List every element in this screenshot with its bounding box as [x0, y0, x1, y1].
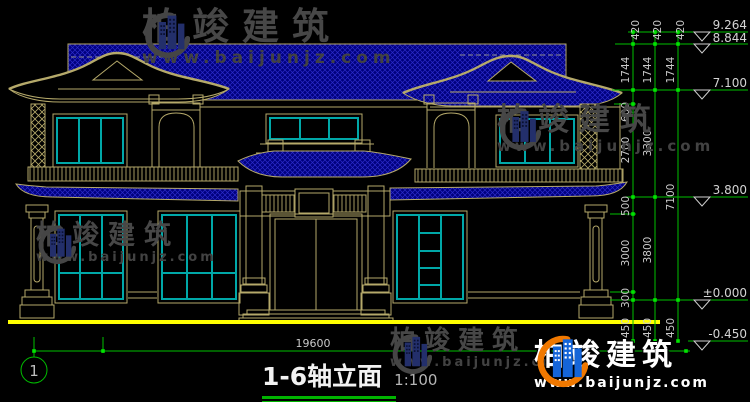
- entrance-door: [270, 214, 362, 310]
- entrance-porch: [239, 186, 393, 322]
- second-floor-left-wing: [31, 104, 127, 168]
- elevation-symbols: [694, 32, 710, 350]
- elevation-label: 7.100: [713, 76, 747, 90]
- dim-label: 420: [630, 20, 642, 40]
- dim-label: 2700: [620, 137, 632, 164]
- dim-label: 7100: [665, 184, 677, 211]
- dim-label: 500: [620, 196, 632, 216]
- elevation-label: 8.844: [713, 31, 747, 45]
- drawing-scale: 1:100: [394, 371, 437, 389]
- dim-label: 450: [665, 318, 677, 338]
- drawing-title: 1-6轴立面: [262, 357, 382, 393]
- cad-drawing-viewport: 420 1744 600 2700 500 3000 300 450 420 1…: [0, 0, 750, 402]
- elevation-label: ±0.000: [703, 286, 747, 300]
- dim-label: 3000: [620, 240, 632, 267]
- first-floor-window-1: [55, 211, 127, 303]
- axis-bubble-label: 1: [29, 362, 39, 380]
- balcony-railing-left: [28, 167, 238, 181]
- overall-width-label: 19600: [296, 337, 331, 350]
- porch-roof: [238, 151, 411, 177]
- elevation-label: -0.450: [708, 327, 747, 341]
- first-floor-eave-left: [16, 184, 238, 201]
- ground-line: [8, 320, 660, 324]
- balcony-railing-right: [415, 169, 623, 182]
- first-floor-window-2: [158, 211, 240, 303]
- dim-label: 1744: [620, 56, 632, 83]
- first-floor-window-3: [393, 211, 467, 303]
- dim-label: 600: [620, 102, 632, 122]
- second-floor-center-window: [200, 107, 427, 153]
- center-left-arch-bay: [149, 95, 203, 168]
- overall-width-dimension: [34, 337, 690, 357]
- dim-label: 1744: [642, 56, 654, 83]
- drawing-title-block: 1-6轴立面 1:100: [262, 357, 437, 402]
- dim-label: 420: [675, 20, 687, 40]
- title-underline: [262, 396, 396, 399]
- elevation-label: 9.264: [713, 18, 747, 32]
- dim-label: 420: [652, 20, 664, 40]
- dim-label: 1744: [665, 56, 677, 83]
- dim-label: 450: [642, 318, 654, 338]
- building-elevation: [8, 44, 660, 324]
- first-floor-left-column: [20, 205, 54, 318]
- first-floor-right-column: [579, 205, 613, 318]
- dim-label: 3300: [642, 130, 654, 157]
- dim-label: 3800: [642, 237, 654, 264]
- dim-label: 300: [620, 288, 632, 308]
- first-floor-eave-right: [390, 182, 627, 200]
- cad-drawing-canvas: 420 1744 600 2700 500 3000 300 450 420 1…: [0, 0, 750, 402]
- elevation-label: 3.800: [713, 183, 747, 197]
- dim-label: 450: [620, 318, 632, 338]
